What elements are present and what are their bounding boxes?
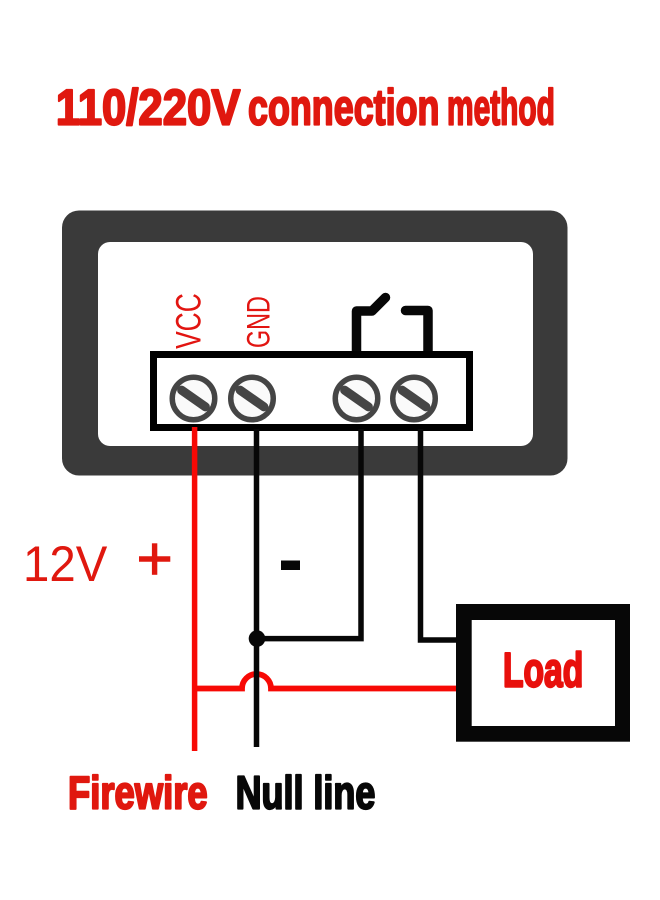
svg-text:110/220V: 110/220V <box>56 80 240 135</box>
svg-text:12V: 12V <box>23 537 108 593</box>
svg-text:method: method <box>447 80 555 136</box>
svg-text:GND: GND <box>241 296 276 348</box>
svg-text:Null line: Null line <box>236 767 376 818</box>
svg-text:VCC: VCC <box>169 293 209 349</box>
svg-text:Firewire: Firewire <box>68 766 208 818</box>
svg-text:connection: connection <box>248 81 439 136</box>
svg-text:Load: Load <box>503 643 583 697</box>
